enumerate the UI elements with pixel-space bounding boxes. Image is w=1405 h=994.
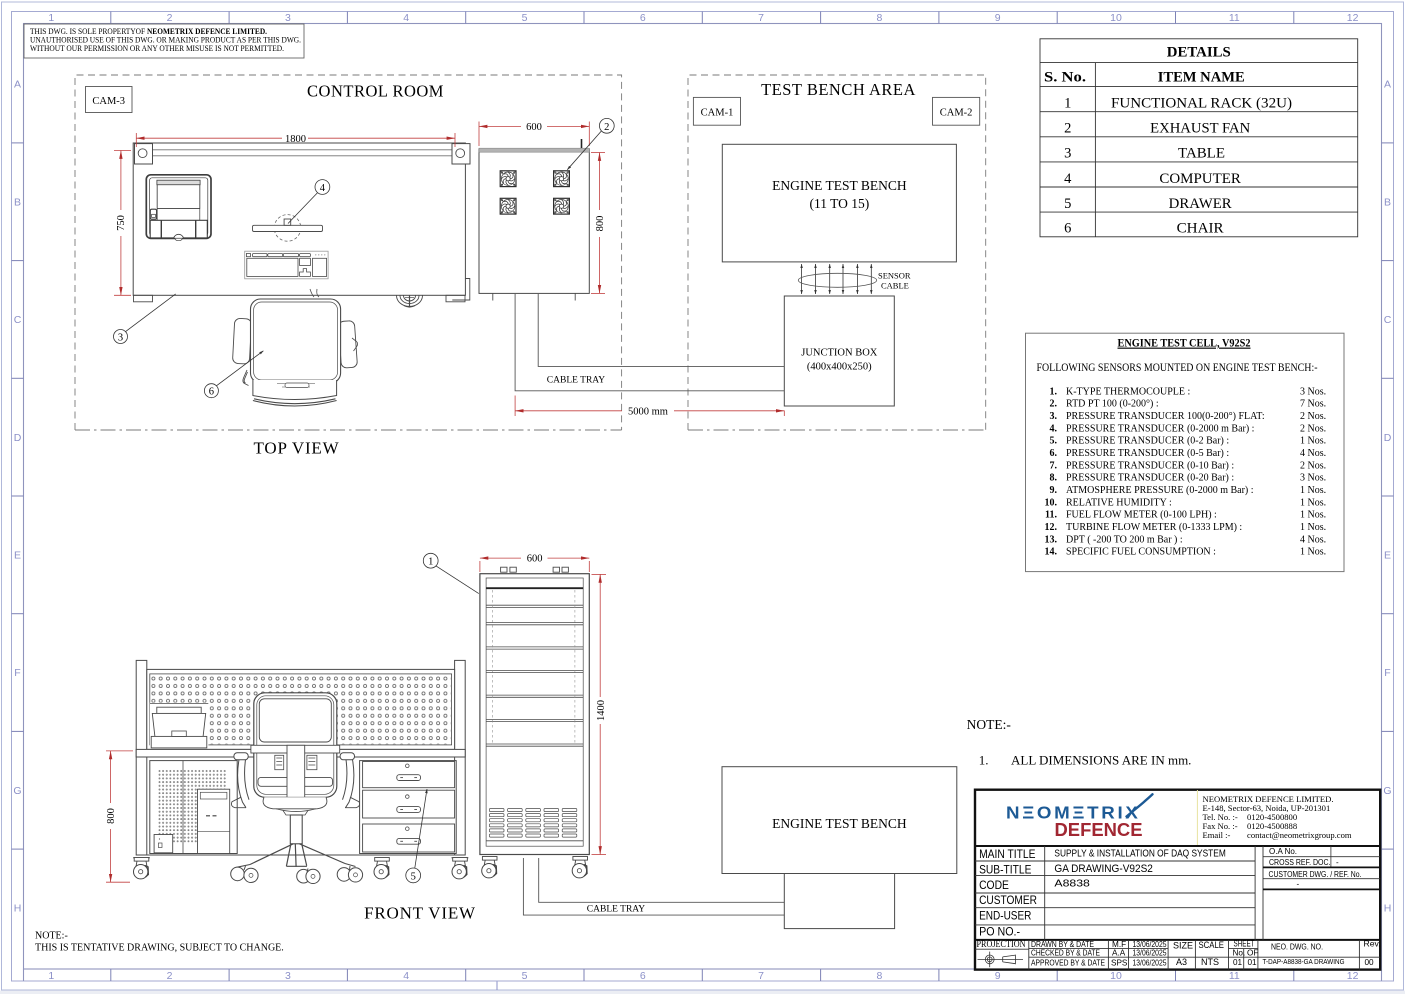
svg-text:8: 8: [876, 970, 882, 982]
svg-text:3: 3: [285, 970, 291, 982]
svg-text:CROSS REF. DOC.: CROSS REF. DOC.: [1269, 858, 1331, 867]
svg-text:contact@neometrixgroup.com: contact@neometrixgroup.com: [1247, 830, 1352, 840]
svg-text:4 Nos.: 4 Nos.: [1300, 448, 1326, 459]
svg-text:ENGINE TEST BENCH: ENGINE TEST BENCH: [772, 816, 907, 831]
svg-text:1: 1: [48, 970, 54, 982]
svg-text:PRESSURE TRANSDUCER (0-5 Bar): PRESSURE TRANSDUCER (0-5 Bar) :: [1066, 448, 1229, 459]
svg-text:C: C: [14, 314, 22, 326]
svg-text:4 Nos.: 4 Nos.: [1300, 534, 1326, 545]
svg-text:FOLLOWING SENSORS MOUNTED ON E: FOLLOWING SENSORS MOUNTED ON ENGINE TEST…: [1037, 362, 1318, 374]
svg-text:S. No.: S. No.: [1044, 70, 1086, 86]
svg-text:THIS IS TENTATIVE DRAWING, SUB: THIS IS TENTATIVE DRAWING, SUBJECT TO CH…: [35, 943, 284, 954]
svg-text:F: F: [1384, 667, 1390, 679]
svg-text:DEFENCE: DEFENCE: [1055, 820, 1143, 840]
svg-text:1 Nos.: 1 Nos.: [1300, 436, 1326, 447]
svg-text:3 Nos.: 3 Nos.: [1300, 386, 1326, 397]
svg-text:K-TYPE THERMOCOUPLE :: K-TYPE THERMOCOUPLE :: [1066, 386, 1190, 397]
svg-text:CAM-2: CAM-2: [940, 107, 973, 118]
svg-text:3: 3: [118, 333, 123, 344]
svg-text:3: 3: [1064, 146, 1071, 162]
svg-text:1800: 1800: [285, 134, 306, 145]
svg-text:B: B: [1384, 196, 1391, 208]
svg-text:CAM-3: CAM-3: [92, 96, 125, 107]
svg-text:CHECKED BY & DATE: CHECKED BY & DATE: [1031, 949, 1100, 958]
svg-text:9.: 9.: [1050, 485, 1058, 496]
svg-text:END-USER: END-USER: [979, 909, 1032, 923]
svg-text:1: 1: [428, 557, 433, 568]
svg-text:5: 5: [1064, 196, 1071, 212]
svg-text:CABLE: CABLE: [881, 281, 909, 291]
svg-text:CODE: CODE: [979, 878, 1009, 892]
svg-text:600: 600: [527, 554, 543, 565]
svg-text:A8838: A8838: [1054, 879, 1090, 890]
svg-text:ITEM NAME: ITEM NAME: [1158, 70, 1245, 86]
svg-text:2: 2: [167, 12, 173, 24]
svg-text:2: 2: [604, 122, 609, 133]
svg-text:A: A: [14, 79, 21, 91]
svg-text:SHEET: SHEET: [1234, 938, 1255, 948]
svg-text:5: 5: [522, 970, 528, 982]
svg-text:Rev.: Rev.: [1364, 938, 1381, 948]
svg-text:1 Nos.: 1 Nos.: [1300, 485, 1326, 496]
svg-text:TURBINE FLOW METER (0-1333 LPM: TURBINE FLOW METER (0-1333 LPM) :: [1066, 522, 1242, 533]
svg-text:1400: 1400: [596, 700, 607, 721]
svg-text:CABLE TRAY: CABLE TRAY: [547, 376, 605, 386]
svg-text:4.: 4.: [1050, 423, 1058, 434]
svg-text:D: D: [1384, 432, 1392, 444]
svg-text:ALL DIMENSIONS ARE IN mm.: ALL DIMENSIONS ARE IN mm.: [1011, 753, 1191, 768]
svg-text:01: 01: [1233, 958, 1243, 967]
svg-text:4: 4: [403, 12, 409, 24]
svg-text:OF: OF: [1247, 949, 1258, 958]
svg-text:6: 6: [1064, 221, 1071, 237]
svg-text:12.: 12.: [1045, 522, 1058, 533]
svg-text:SUPPLY & INSTALLATION OF DAQ S: SUPPLY & INSTALLATION OF DAQ SYSTEM: [1054, 849, 1225, 860]
svg-text:A3: A3: [1176, 957, 1187, 967]
svg-text:01: 01: [1248, 958, 1258, 967]
svg-text:JUNCTION BOX: JUNCTION BOX: [801, 348, 878, 359]
svg-text:1 Nos.: 1 Nos.: [1300, 497, 1326, 508]
svg-text:3 Nos.: 3 Nos.: [1300, 473, 1326, 484]
svg-text:PO NO.-: PO NO.-: [979, 924, 1020, 938]
svg-text:1 Nos.: 1 Nos.: [1300, 510, 1326, 521]
svg-text:MAIN TITLE: MAIN TITLE: [979, 847, 1035, 861]
svg-text:2 Nos.: 2 Nos.: [1300, 423, 1326, 434]
svg-text:1 Nos.: 1 Nos.: [1300, 522, 1326, 533]
svg-text:13/06/2025: 13/06/2025: [1133, 959, 1167, 968]
svg-text:1: 1: [48, 12, 54, 24]
svg-text:7.: 7.: [1050, 460, 1058, 471]
svg-text:-: -: [1297, 879, 1300, 888]
svg-text:13/06/2025: 13/06/2025: [1133, 949, 1167, 958]
svg-text:6.: 6.: [1050, 448, 1058, 459]
svg-text:PRESSURE TRANSDUCER 100(0-200°: PRESSURE TRANSDUCER 100(0-200°) FLAT:: [1066, 411, 1265, 422]
svg-text:B: B: [14, 196, 21, 208]
svg-text:00: 00: [1365, 958, 1375, 967]
svg-text:CONTROL ROOM: CONTROL ROOM: [307, 82, 444, 101]
svg-text:E: E: [14, 550, 21, 562]
svg-text:TEST BENCH AREA: TEST BENCH AREA: [761, 80, 916, 99]
svg-text:F: F: [14, 667, 20, 679]
svg-text:11: 11: [1229, 12, 1240, 24]
svg-text:DPT ( -200 TO 200 m Bar ) :: DPT ( -200 TO 200 m Bar ) :: [1066, 534, 1183, 545]
svg-text:NOTE:-: NOTE:-: [967, 717, 1012, 732]
svg-text:800: 800: [106, 808, 117, 824]
svg-text:8.: 8.: [1050, 473, 1058, 484]
svg-text:2: 2: [1064, 121, 1071, 137]
svg-text:TOP VIEW: TOP VIEW: [254, 439, 340, 458]
svg-text:13/06/2025: 13/06/2025: [1133, 940, 1167, 949]
svg-text:SPECIFIC FUEL CONSUMPTION :: SPECIFIC FUEL CONSUMPTION :: [1066, 547, 1216, 558]
svg-text:D: D: [14, 432, 22, 444]
svg-text:TABLE: TABLE: [1178, 146, 1225, 162]
svg-text:CUSTOMER DWG. / REF. No.: CUSTOMER DWG. / REF. No.: [1269, 870, 1362, 879]
svg-text:14.: 14.: [1045, 547, 1058, 558]
svg-text:2.: 2.: [1050, 399, 1058, 410]
svg-text:FUNCTIONAL RACK (32U): FUNCTIONAL RACK (32U): [1111, 96, 1292, 112]
svg-text:A: A: [1384, 79, 1391, 91]
svg-text:C: C: [1384, 314, 1392, 326]
svg-text:PRESSURE TRANSDUCER (0-2000 m: PRESSURE TRANSDUCER (0-2000 m Bar) :: [1066, 423, 1254, 434]
svg-text:3.: 3.: [1050, 411, 1058, 422]
svg-text:DETAILS: DETAILS: [1167, 45, 1231, 61]
svg-text:5: 5: [411, 871, 416, 882]
svg-text:DRAWN BY & DATE: DRAWN BY & DATE: [1031, 940, 1094, 949]
svg-text:5: 5: [522, 12, 528, 24]
svg-text:NOTE:-: NOTE:-: [35, 931, 68, 942]
svg-text:4: 4: [1064, 171, 1072, 187]
svg-text:12: 12: [1347, 970, 1359, 982]
svg-text:ENGINE TEST CELL, V92S2: ENGINE TEST CELL, V92S2: [1118, 338, 1251, 350]
svg-text:2 Nos.: 2 Nos.: [1300, 411, 1326, 422]
svg-text:Email :-: Email :-: [1203, 830, 1231, 840]
svg-text:10: 10: [1110, 12, 1122, 24]
svg-text:PROJECTION: PROJECTION: [977, 940, 1026, 950]
svg-text:G: G: [1383, 785, 1391, 797]
svg-text:7: 7: [758, 12, 764, 24]
svg-text:5000 mm: 5000 mm: [628, 406, 668, 417]
svg-text:PRESSURE TRANSDUCER (0-10 Bar): PRESSURE TRANSDUCER (0-10 Bar) :: [1066, 460, 1234, 471]
svg-text:RTD PT 100 (0-200°) :: RTD PT 100 (0-200°) :: [1066, 399, 1159, 410]
svg-text:7: 7: [758, 970, 764, 982]
svg-text:E: E: [1384, 550, 1391, 562]
svg-text:5.: 5.: [1050, 436, 1058, 447]
svg-text:DRAWER: DRAWER: [1169, 196, 1232, 212]
svg-text:H: H: [1384, 903, 1392, 915]
svg-text:SENSOR: SENSOR: [878, 271, 911, 281]
svg-text:750: 750: [116, 215, 127, 231]
svg-text:1: 1: [1064, 96, 1071, 112]
svg-text:RELATIVE HUMIDITY :: RELATIVE HUMIDITY :: [1066, 497, 1172, 508]
svg-text:NTS: NTS: [1201, 957, 1219, 967]
svg-text:12: 12: [1347, 12, 1359, 24]
svg-text:2: 2: [167, 970, 173, 982]
svg-text:6: 6: [640, 970, 646, 982]
svg-text:M.F: M.F: [1112, 940, 1126, 949]
svg-text:EXHAUST FAN: EXHAUST FAN: [1150, 121, 1251, 137]
svg-text:APPROVED BY & DATE: APPROVED BY & DATE: [1031, 959, 1105, 968]
svg-text:NEO. DWG. NO.: NEO. DWG. NO.: [1271, 942, 1323, 952]
svg-text:(11 TO 15): (11 TO 15): [810, 196, 870, 211]
svg-text:WITHOUT OUR PERMISSION OR ANY: WITHOUT OUR PERMISSION OR ANY OTHER MISU…: [30, 44, 284, 53]
svg-text:CUSTOMER: CUSTOMER: [979, 893, 1037, 907]
svg-text:T-DAP-A8838-GA DRAWING: T-DAP-A8838-GA DRAWING: [1263, 957, 1345, 966]
svg-text:2 Nos.: 2 Nos.: [1300, 460, 1326, 471]
svg-text:SCALE: SCALE: [1199, 940, 1225, 950]
svg-text:(400x400x250): (400x400x250): [807, 362, 872, 373]
svg-text:10.: 10.: [1045, 497, 1058, 508]
svg-text:ENGINE TEST BENCH: ENGINE TEST BENCH: [772, 178, 907, 193]
svg-text:4: 4: [403, 970, 409, 982]
svg-text:SIZE: SIZE: [1173, 941, 1193, 951]
svg-text:13.: 13.: [1045, 534, 1058, 545]
svg-text:PRESSURE TRANSDUCER (0-2 Bar): PRESSURE TRANSDUCER (0-2 Bar) :: [1066, 436, 1229, 447]
svg-text:GA DRAWING-V92S2: GA DRAWING-V92S2: [1054, 863, 1153, 875]
svg-text:-: -: [1336, 858, 1339, 867]
svg-text:CABLE TRAY: CABLE TRAY: [587, 905, 645, 915]
svg-text:1 Nos.: 1 Nos.: [1300, 547, 1326, 558]
svg-text:3: 3: [285, 12, 291, 24]
svg-text:1.: 1.: [979, 753, 989, 768]
svg-text:11: 11: [1229, 970, 1240, 982]
svg-text:SUB-TITLE: SUB-TITLE: [979, 863, 1031, 877]
svg-text:10: 10: [1110, 970, 1122, 982]
svg-text:7 Nos.: 7 Nos.: [1300, 399, 1326, 410]
svg-text:11.: 11.: [1045, 510, 1057, 521]
svg-text:CAM-1: CAM-1: [701, 107, 734, 118]
svg-text:SPS: SPS: [1111, 959, 1128, 968]
svg-text:A.A: A.A: [1112, 949, 1126, 958]
svg-text:FUEL FLOW METER (0-100 LPH) :: FUEL FLOW METER (0-100 LPH) :: [1066, 510, 1217, 521]
svg-text:G: G: [13, 785, 21, 797]
svg-text:O.A No.: O.A No.: [1269, 847, 1297, 856]
svg-text:9: 9: [995, 970, 1001, 982]
svg-text:1.: 1.: [1050, 386, 1058, 397]
svg-text:No.: No.: [1233, 949, 1246, 958]
svg-text:ATMOSPHERE PRESSURE (0-2000 m: ATMOSPHERE PRESSURE (0-2000 m Bar) :: [1066, 485, 1254, 496]
svg-text:8: 8: [876, 12, 882, 24]
svg-text:4: 4: [320, 183, 326, 194]
svg-text:CHAIR: CHAIR: [1177, 221, 1224, 237]
svg-text:PRESSURE TRANSDUCER (0-20 Bar): PRESSURE TRANSDUCER (0-20 Bar) :: [1066, 473, 1234, 484]
svg-text:6: 6: [640, 12, 646, 24]
svg-text:6: 6: [209, 387, 214, 398]
svg-text:600: 600: [526, 122, 542, 133]
svg-text:H: H: [14, 903, 22, 915]
svg-text:COMPUTER: COMPUTER: [1159, 171, 1241, 187]
svg-text:FRONT VIEW: FRONT VIEW: [364, 904, 476, 923]
svg-text:800: 800: [595, 216, 606, 232]
svg-text:9: 9: [995, 12, 1001, 24]
